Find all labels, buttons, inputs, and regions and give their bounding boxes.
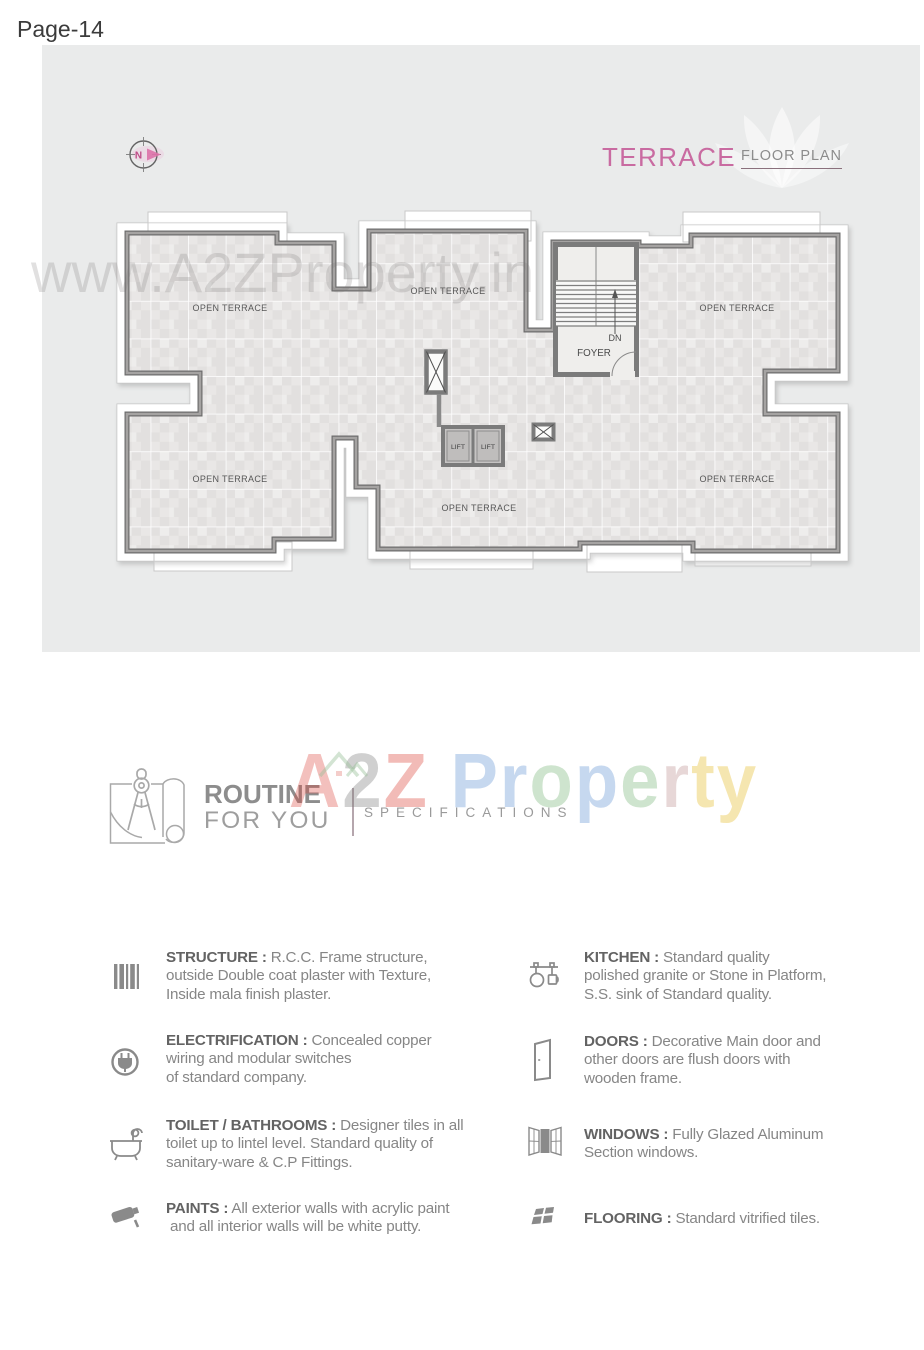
svg-text:LIFT: LIFT — [451, 444, 465, 451]
svg-text:N: N — [135, 151, 142, 162]
svg-text:OPEN TERRACE: OPEN TERRACE — [699, 474, 774, 484]
svg-text:FOYER: FOYER — [577, 348, 611, 359]
svg-text:OPEN TERRACE: OPEN TERRACE — [441, 503, 516, 513]
svg-text:OPEN TERRACE: OPEN TERRACE — [192, 474, 267, 484]
svg-text:OPEN TERRACE: OPEN TERRACE — [699, 303, 774, 313]
svg-text:DN: DN — [609, 333, 622, 343]
svg-text:LIFT: LIFT — [481, 444, 495, 451]
